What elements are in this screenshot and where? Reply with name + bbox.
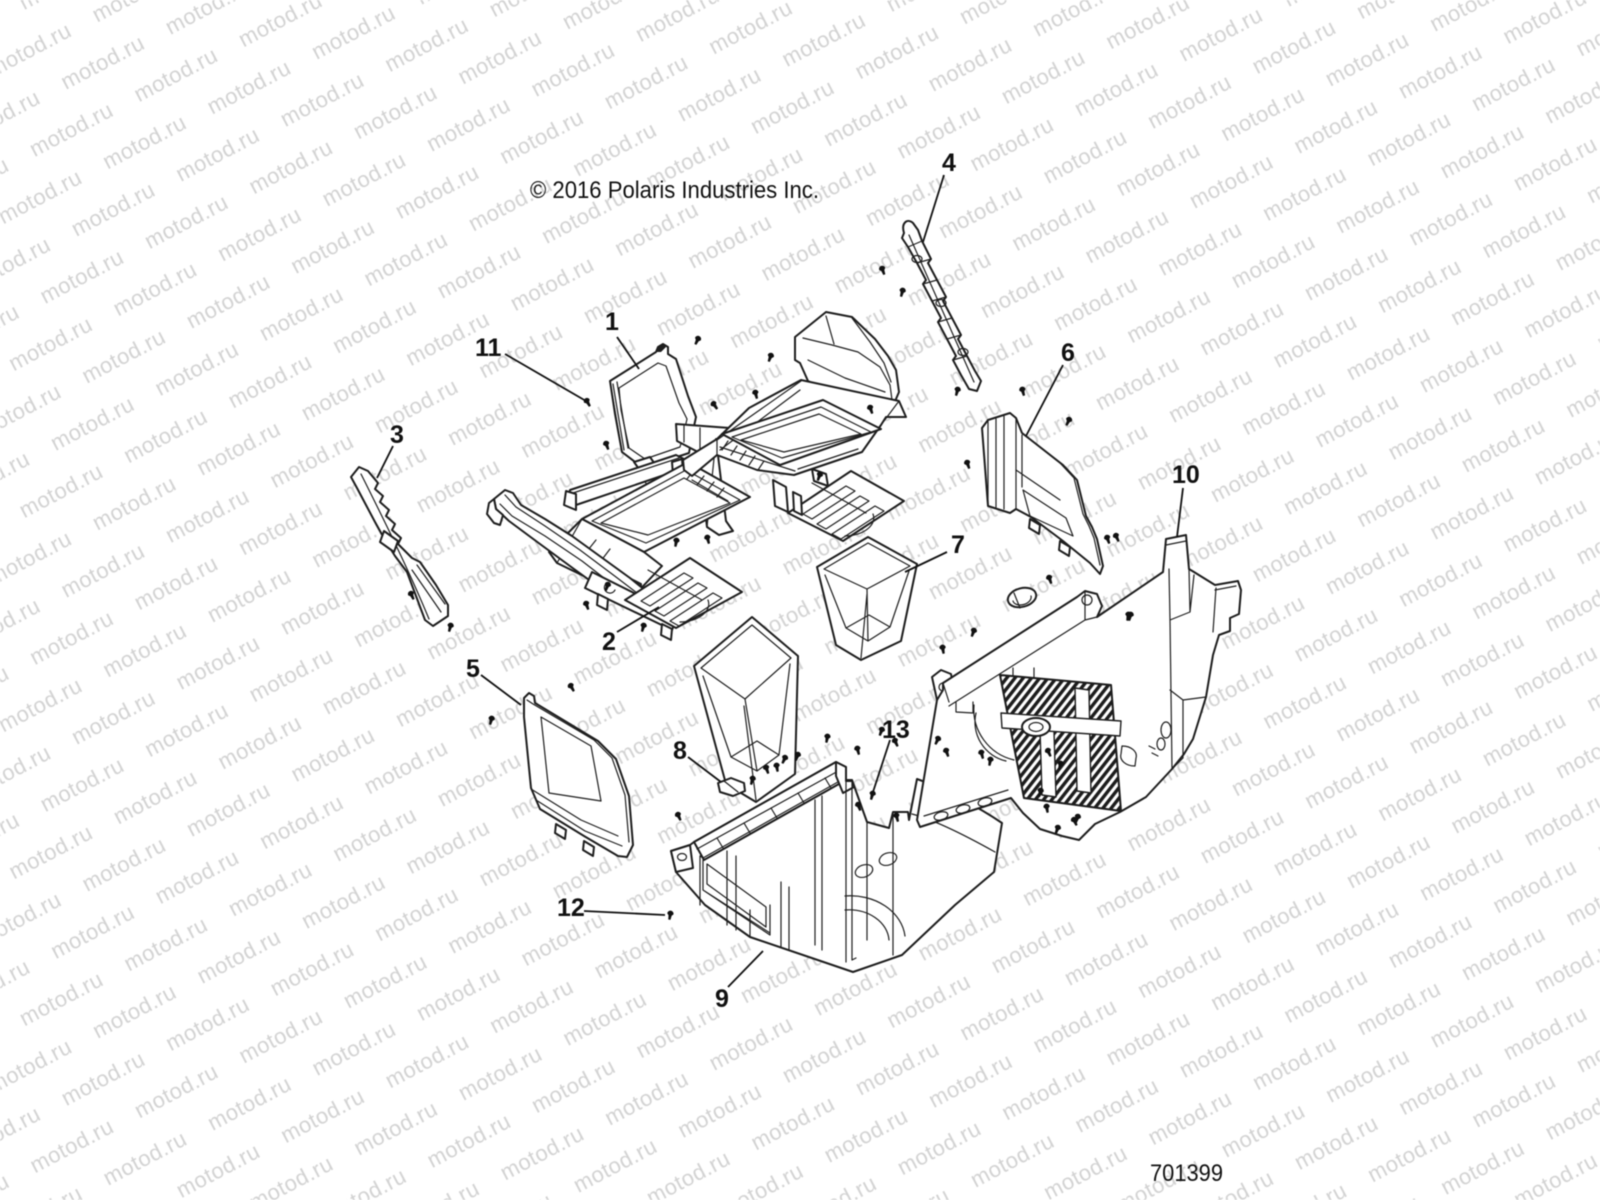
svg-text:6: 6 [1061, 339, 1075, 367]
svg-text:8: 8 [673, 737, 687, 765]
svg-text:13: 13 [882, 716, 910, 744]
svg-text:701399: 701399 [1150, 1160, 1223, 1187]
svg-text:7: 7 [951, 531, 965, 559]
svg-text:4: 4 [942, 149, 956, 177]
svg-text:12: 12 [557, 894, 585, 922]
svg-text:© 2016 Polaris Industries Inc.: © 2016 Polaris Industries Inc. [530, 177, 819, 204]
svg-text:3: 3 [390, 421, 404, 449]
svg-text:1: 1 [605, 308, 619, 336]
svg-text:5: 5 [466, 655, 480, 683]
svg-text:9: 9 [715, 985, 729, 1013]
svg-text:11: 11 [475, 334, 502, 362]
svg-text:2: 2 [602, 628, 616, 656]
svg-text:10: 10 [1172, 461, 1200, 489]
